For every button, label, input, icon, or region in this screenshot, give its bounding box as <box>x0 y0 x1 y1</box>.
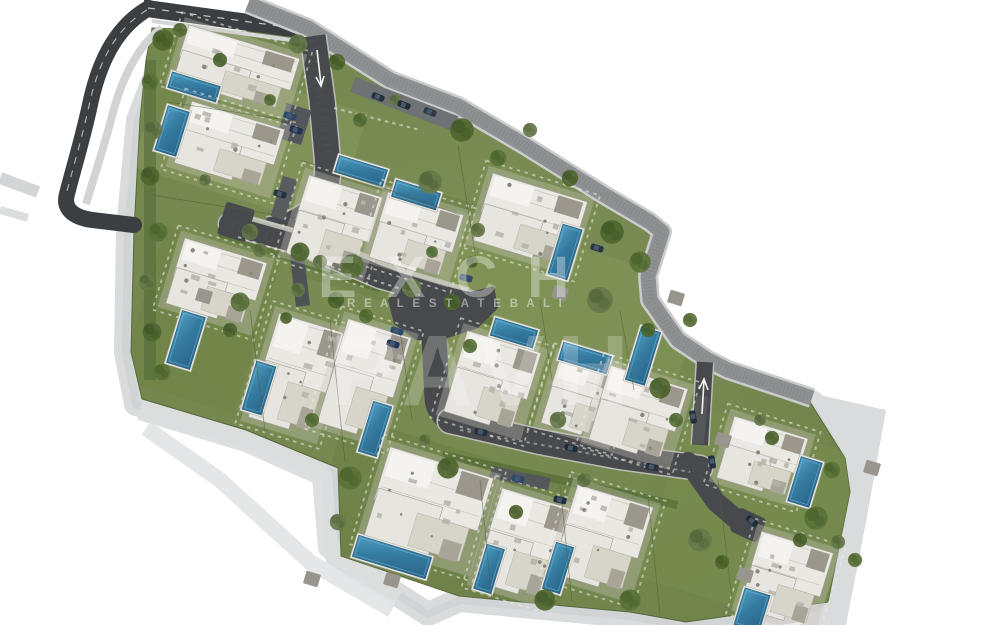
svg-text:PAVH: PAVH <box>330 315 641 427</box>
svg-text:R E A L E S T A T E B A L: R E A L E S T A T E B A L I <box>347 298 565 310</box>
